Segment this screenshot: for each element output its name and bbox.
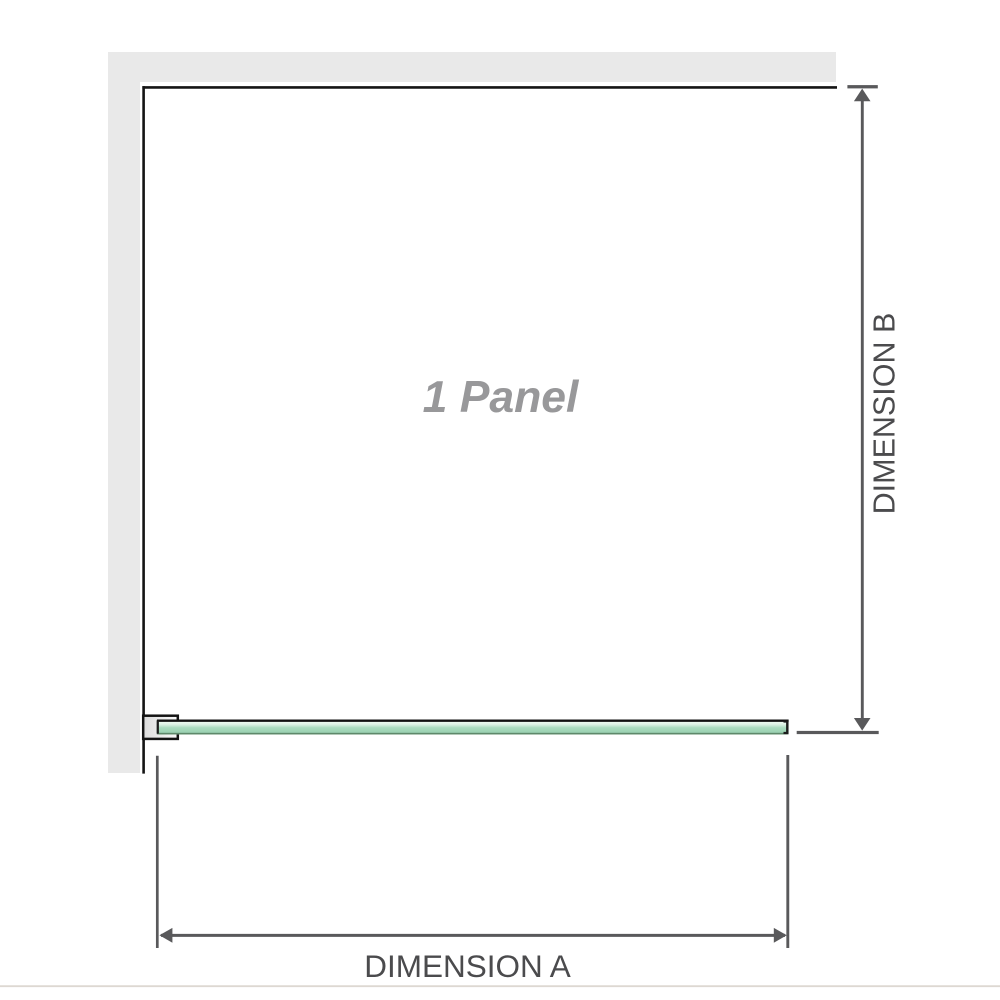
svg-text:DIMENSION B: DIMENSION B [868,313,902,515]
svg-text:1 Panel: 1 Panel [423,373,580,422]
svg-text:DIMENSION A: DIMENSION A [364,948,571,984]
